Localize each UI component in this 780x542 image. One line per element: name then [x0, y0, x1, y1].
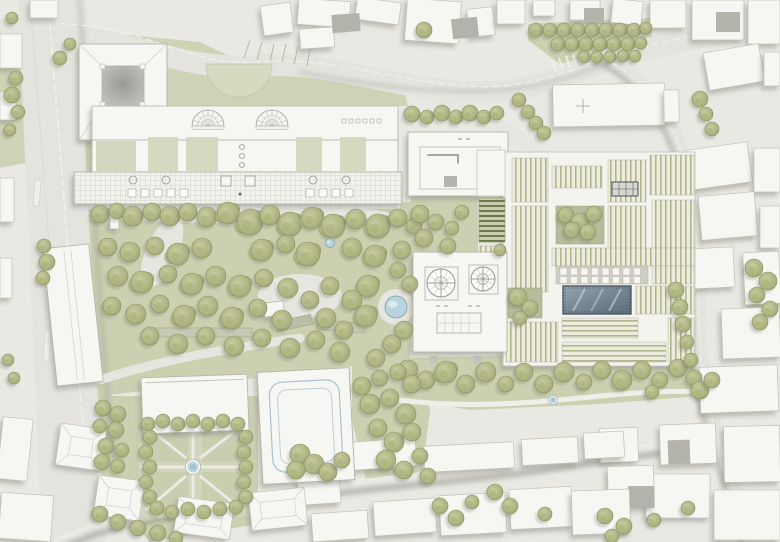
context-building — [373, 498, 437, 536]
context-building — [748, 0, 780, 44]
round-lecture-hall-west — [427, 269, 455, 297]
context-building — [260, 2, 294, 36]
park-pond — [385, 296, 407, 318]
context-courtyard — [451, 17, 479, 40]
courtyard-corner — [140, 64, 145, 69]
garden-fountain — [186, 460, 201, 475]
context-building — [248, 487, 308, 531]
context-courtyard — [584, 8, 604, 24]
pool-roof-hatch — [444, 176, 457, 187]
context-courtyard — [716, 12, 740, 32]
plaza-fountain — [549, 396, 558, 405]
site-plan-canvas[interactable] — [0, 0, 780, 542]
context-courtyard — [331, 13, 360, 33]
round-lecture-hall-east — [471, 267, 495, 291]
striped-roof — [562, 342, 666, 362]
context-building — [30, 0, 58, 18]
striped-roof — [512, 206, 548, 292]
striped-roof — [608, 206, 646, 252]
context-building — [299, 27, 334, 49]
striped-roof — [552, 248, 694, 266]
striped-roof — [512, 158, 548, 202]
stair-hatch — [479, 198, 505, 242]
context-building — [724, 426, 780, 483]
context-building — [0, 178, 14, 222]
comb-courtyard — [296, 137, 322, 171]
context-building — [714, 490, 780, 540]
context-building — [760, 206, 780, 248]
striped-roof — [652, 266, 694, 284]
comb-courtyard — [148, 137, 178, 171]
plan-layers — [0, 0, 780, 542]
connector-wing — [477, 150, 505, 196]
roof-box — [245, 176, 255, 186]
context-building — [0, 492, 54, 542]
context-building — [311, 510, 369, 542]
comb-courtyard — [96, 141, 136, 171]
context-building — [0, 34, 22, 68]
context-building — [764, 52, 780, 86]
context-building — [646, 474, 710, 518]
context-building — [521, 437, 578, 466]
gallery-slab-building — [74, 172, 402, 204]
context-building — [650, 0, 686, 28]
context-building — [611, 0, 643, 26]
striped-roof — [650, 155, 694, 195]
context-building — [686, 142, 753, 190]
striped-roof — [562, 318, 638, 338]
context-building — [423, 442, 514, 473]
context-courtyard — [668, 440, 691, 465]
striped-roof — [652, 200, 694, 248]
context-building — [583, 431, 624, 459]
comb-courtyard — [186, 137, 218, 171]
striped-roof — [552, 166, 602, 188]
context-building — [497, 0, 525, 24]
roof-box — [221, 176, 231, 186]
site-plan — [0, 0, 780, 542]
context-courtyard — [628, 486, 654, 508]
striped-roof — [506, 322, 558, 362]
comb-courtyard — [340, 137, 366, 171]
inner-courtyard — [102, 66, 144, 106]
glass-atrium-roof — [563, 286, 631, 314]
north-campus-annex — [664, 90, 680, 122]
context-building — [533, 0, 555, 16]
north-campus-building — [553, 83, 666, 127]
context-building — [698, 192, 758, 241]
context-building — [754, 148, 780, 192]
small-pond — [326, 239, 335, 248]
context-building — [0, 258, 12, 298]
center-dot — [239, 193, 242, 196]
courtyard-corner — [100, 64, 105, 69]
